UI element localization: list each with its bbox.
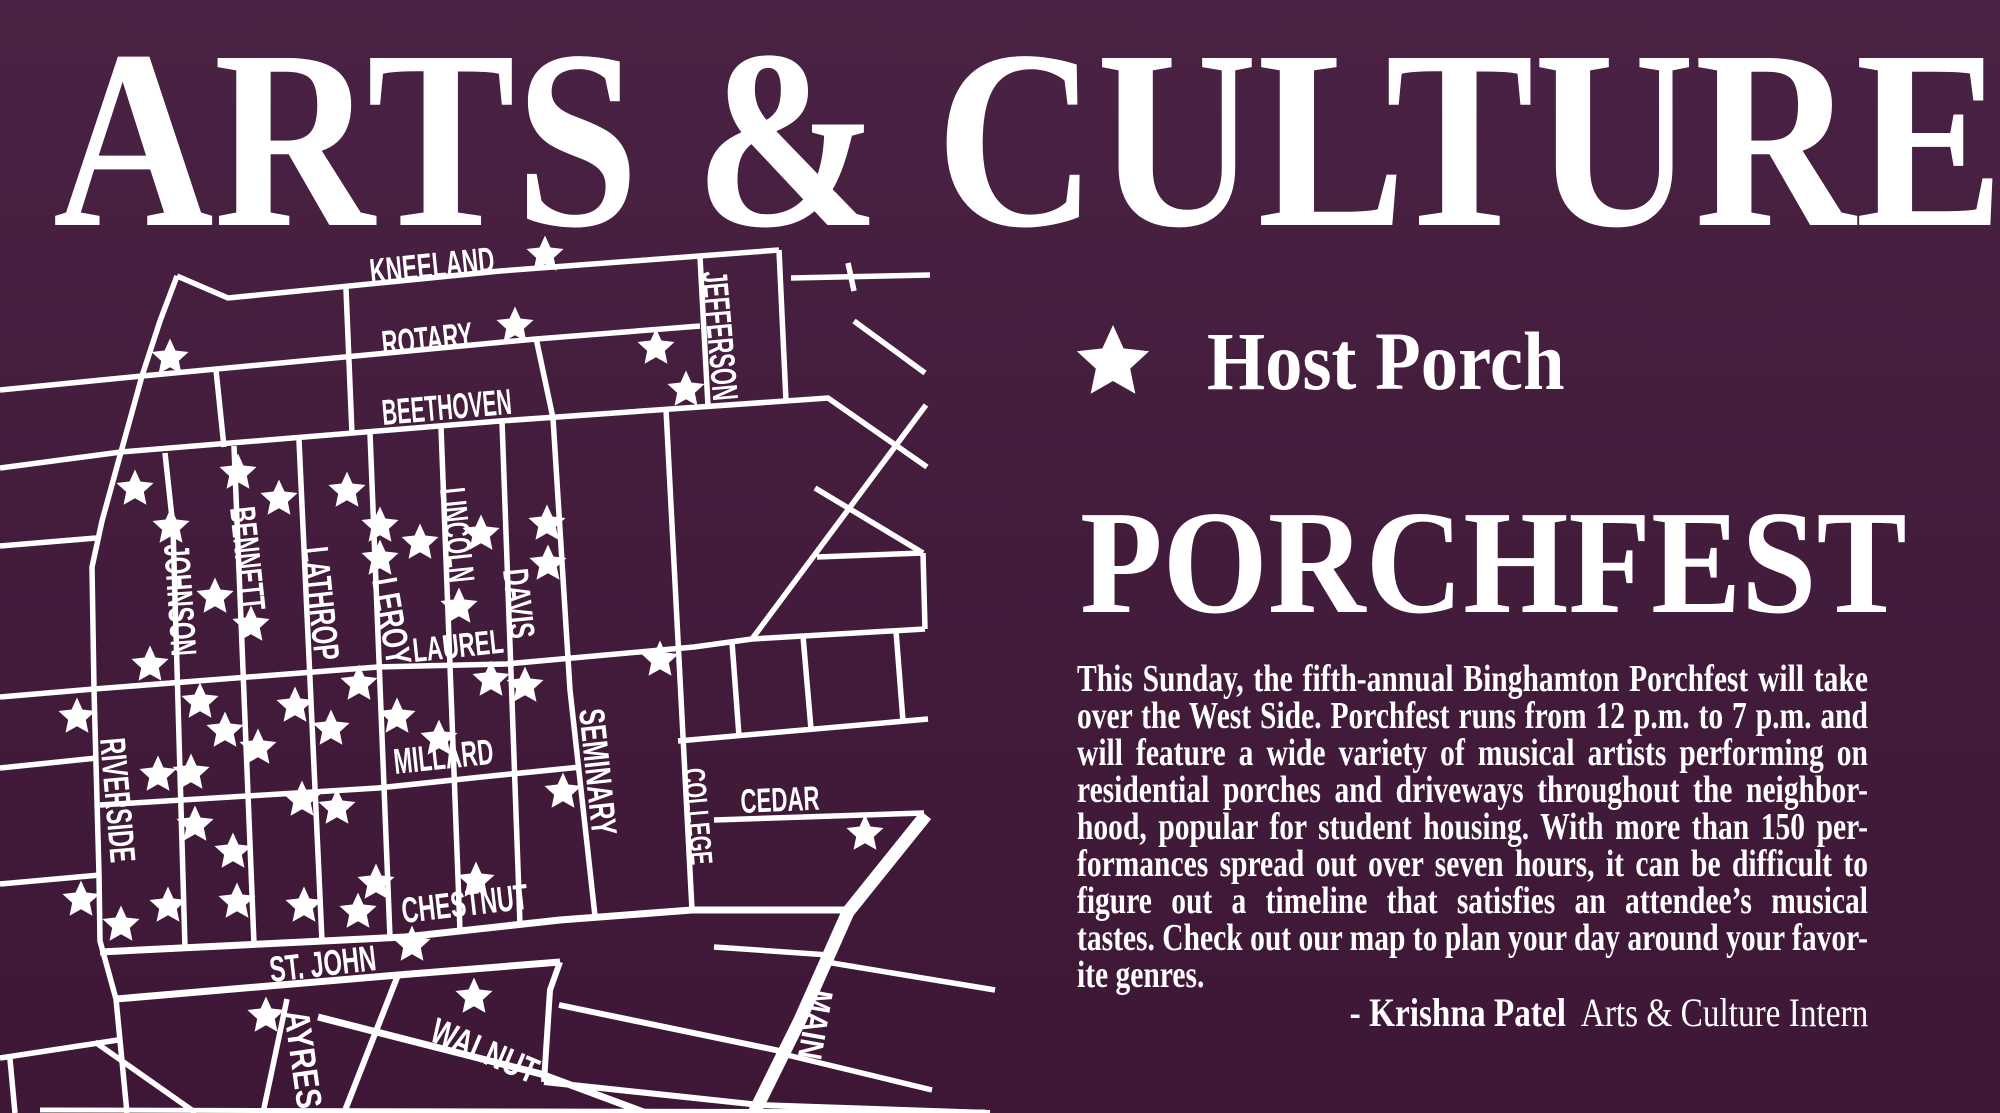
svg-text:LATHROP: LATHROP [295,545,348,663]
svg-text:DAVIS: DAVIS [495,567,543,641]
svg-text:JOHNSON: JOHNSON [156,543,205,658]
svg-text:SEMINARY: SEMINARY [571,707,625,838]
svg-text:BEETHOVEN: BEETHOVEN [380,381,513,433]
svg-text:WALNUT: WALNUT [425,1010,545,1092]
svg-text:LEROY: LEROY [364,574,420,668]
svg-text:ROTARY: ROTARY [380,314,475,364]
svg-text:CEDAR: CEDAR [740,780,821,821]
svg-text:COLLEGE: COLLEGE [676,767,719,867]
svg-text:BENNETT: BENNETT [222,505,274,613]
svg-text:JEFFERSON: JEFFERSON [694,269,746,402]
svg-text:AYRES: AYRES [276,1007,330,1111]
svg-text:MAIN: MAIN [790,987,840,1063]
